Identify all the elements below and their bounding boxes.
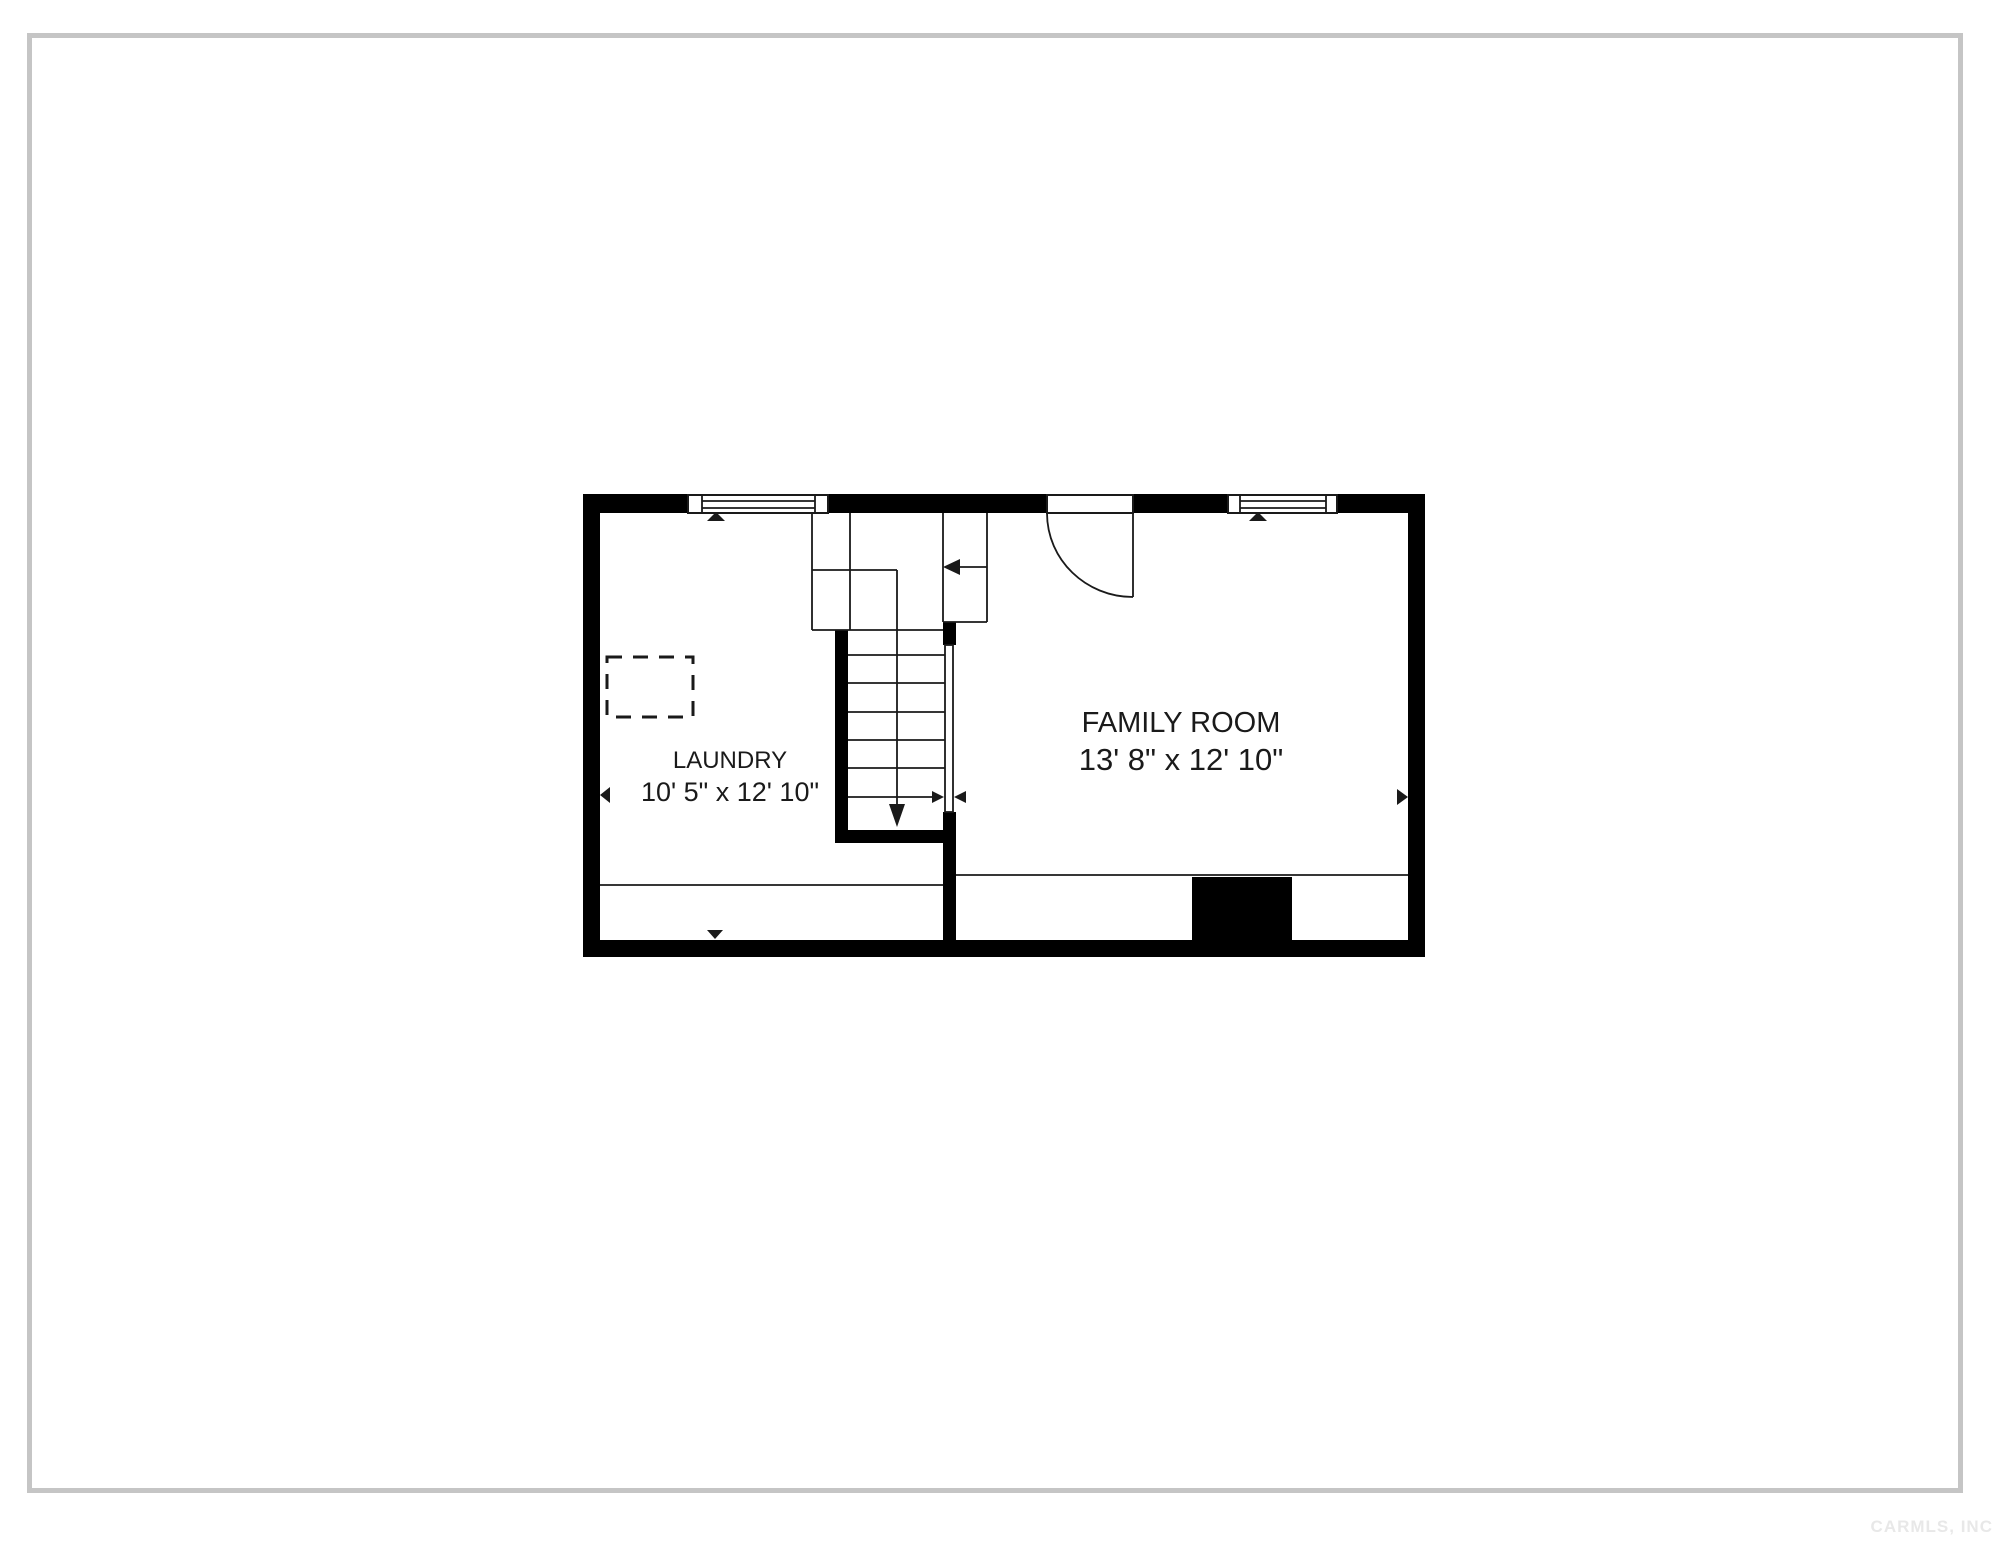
window-left [688, 495, 828, 513]
fireplace [1192, 877, 1292, 940]
room-label-family-room: FAMILY ROOM 13' 8" x 12' 10" [1079, 705, 1283, 780]
right-arrow-icon [932, 791, 944, 803]
left-triangle-icon [600, 787, 610, 803]
bottom-wall [583, 940, 1425, 957]
left-wall [583, 494, 600, 957]
room-dimensions: 10' 5" x 12' 10" [641, 776, 819, 810]
door-swing-arc [1047, 513, 1133, 597]
window-frame [688, 495, 828, 513]
appliance-dashed-box [607, 657, 693, 717]
room-name: FAMILY ROOM [1079, 705, 1283, 741]
room-name: LAUNDRY [641, 746, 819, 776]
room-dimensions: 13' 8" x 12' 10" [1079, 741, 1283, 780]
stair-divider-wall [943, 812, 956, 957]
down-triangle-icon [707, 930, 723, 939]
top-wall-segment [1133, 494, 1228, 513]
right-wall [1408, 494, 1425, 957]
staircase [848, 630, 966, 827]
window-right [1228, 495, 1337, 513]
room-label-laundry: LAUNDRY 10' 5" x 12' 10" [641, 746, 819, 810]
door-threshold [1047, 495, 1133, 513]
right-triangle-icon [1397, 789, 1408, 805]
down-arrow-icon [889, 804, 905, 827]
door [1047, 495, 1133, 597]
floor-plan-page: LAUNDRY 10' 5" x 12' 10" FAMILY ROOM 13'… [0, 0, 2000, 1545]
left-arrow-icon [954, 791, 966, 803]
exterior-walls [583, 494, 1425, 957]
stair-rail [945, 645, 953, 812]
top-wall-segment [828, 494, 1048, 513]
watermark: CARMLS, INC [1871, 1517, 1993, 1537]
stair-bottom-wall [835, 830, 956, 843]
stair-right-stub-wall [943, 622, 956, 645]
stair-landing [812, 513, 987, 630]
window-frame [1228, 495, 1337, 513]
left-arrow-icon [943, 559, 960, 575]
stair-left-wall [835, 630, 848, 843]
floor-plan [0, 0, 2000, 1545]
interior-walls [835, 622, 1292, 957]
